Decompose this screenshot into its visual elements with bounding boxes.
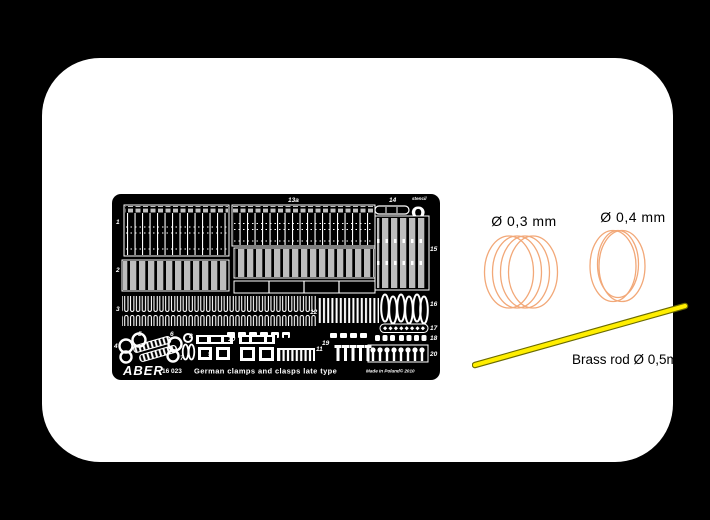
- brass-rod-label: Brass rod Ø 0,5mm: [565, 352, 689, 367]
- fret-group-11: [277, 348, 315, 361]
- caption: 16 023German clasps & clamps (2 choice) …: [84, 484, 710, 505]
- fret-group-17: [380, 324, 428, 333]
- fret-group-13a: [232, 205, 375, 246]
- fret-group-3: [122, 296, 316, 326]
- part-label-6: 6: [170, 331, 174, 338]
- fret-graphic: Ω: [112, 194, 440, 380]
- fret-group-13b: [234, 248, 375, 278]
- fret-group-15: [375, 216, 429, 290]
- stencil-note: stencil: [412, 196, 427, 201]
- part-label-14: 14: [389, 197, 397, 204]
- part-label-13a: 13a: [288, 197, 299, 204]
- fret-group-18: [375, 335, 427, 341]
- fret-group-1: [124, 205, 229, 256]
- part-label-5: 5: [138, 331, 142, 338]
- fret-title: German clamps and clasps late type: [194, 367, 337, 376]
- part-label-10: 10: [228, 336, 236, 343]
- coil-large-label: Ø 0,4 mm: [591, 209, 675, 225]
- wire-coil-0-3mm: [485, 236, 558, 308]
- part-label-3: 3: [116, 306, 120, 313]
- part-label-12: 12: [310, 309, 318, 316]
- fret-catalog-no: 16 023: [162, 368, 182, 375]
- coil-small-label: Ø 0,3 mm: [482, 213, 566, 229]
- part-label-19: 19: [322, 340, 330, 347]
- fret-group-16: [381, 295, 428, 324]
- part-label-8: 8: [189, 333, 193, 340]
- part-label-4: 4: [113, 343, 118, 350]
- part-label-7: 7: [180, 355, 184, 362]
- part-label-16: 16: [430, 301, 438, 308]
- product-sheet: { "page": { "background_color": "#000000…: [0, 0, 710, 520]
- part-label-2: 2: [115, 267, 120, 274]
- part-label-9: 9: [208, 351, 212, 358]
- part-label-18: 18: [430, 335, 438, 342]
- made-in-note: Made in Poland© 2010: [366, 368, 415, 374]
- part-label-15: 15: [430, 246, 438, 253]
- caption-catalog-no: 16 023: [168, 484, 223, 504]
- brand-logo: ABER: [122, 363, 164, 378]
- fret-group-band: [234, 281, 375, 293]
- part-label-20: 20: [429, 351, 438, 358]
- fret-group-20: [335, 345, 429, 362]
- part-label-1: 1: [116, 219, 120, 226]
- part-label-11: 11: [316, 346, 323, 353]
- white-card: Ω: [42, 58, 673, 462]
- wire-coil-0-4mm: [590, 231, 645, 302]
- fret-group-12: [317, 298, 379, 323]
- caption-title: German clasps & clamps (2 choice) late t…: [249, 484, 630, 504]
- etched-fret-plate: Ω: [112, 194, 440, 380]
- fret-group-2: [122, 260, 229, 291]
- fret-group-14: [375, 206, 409, 214]
- part-label-17: 17: [430, 325, 438, 332]
